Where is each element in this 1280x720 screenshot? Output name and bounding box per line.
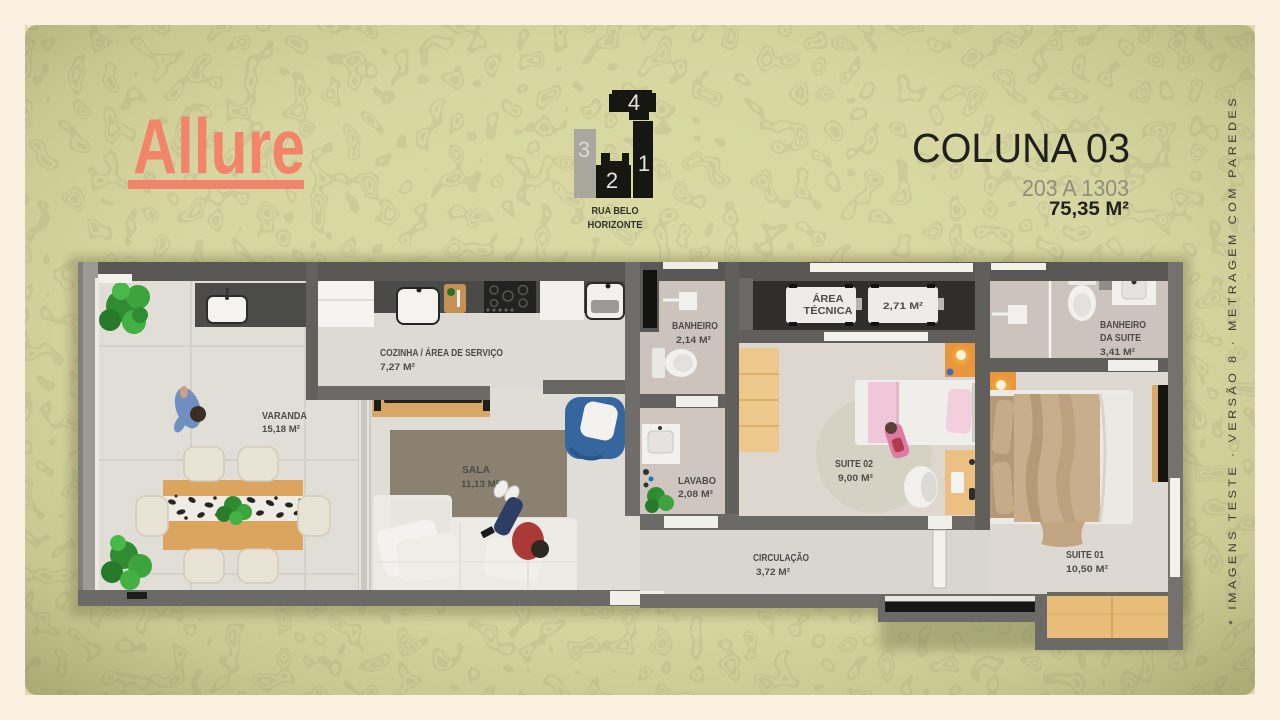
svg-text:DA SUITE: DA SUITE [1100,333,1141,344]
svg-text:7,27 M²: 7,27 M² [380,362,415,372]
svg-text:BANHEIRO: BANHEIRO [672,321,718,332]
svg-text:75,35 M²: 75,35 M² [1049,199,1129,220]
svg-text:COZINHA / ÁREA DE SERVIÇO: COZINHA / ÁREA DE SERVIÇO [380,347,503,359]
svg-text:2,14 M²: 2,14 M² [676,335,711,345]
svg-text:HORIZONTE: HORIZONTE [588,219,643,231]
svg-text:RUA BELO: RUA BELO [592,205,639,217]
svg-text:3,41 M²: 3,41 M² [1100,347,1135,357]
svg-text:9,00 M²: 9,00 M² [838,473,873,483]
svg-text:Allure: Allure [133,102,305,190]
svg-text:SUITE 02: SUITE 02 [835,459,873,470]
svg-text:10,50 M²: 10,50 M² [1066,564,1108,574]
svg-text:CIRCULAÇÃO: CIRCULAÇÃO [753,553,809,564]
svg-text:TÉCNICA: TÉCNICA [804,305,853,317]
svg-text:SUITE 01: SUITE 01 [1066,550,1104,561]
svg-text:3: 3 [578,137,590,162]
svg-text:* IMAGENS TESTE · VERSÃO 8 · M: * IMAGENS TESTE · VERSÃO 8 · METRAGEM CO… [1226,95,1239,625]
svg-text:VARANDA: VARANDA [262,411,307,422]
svg-text:LAVABO: LAVABO [678,476,716,487]
svg-text:15,18 M²: 15,18 M² [262,424,300,434]
svg-text:BANHEIRO: BANHEIRO [1100,320,1146,331]
svg-text:11,13 M²: 11,13 M² [461,479,499,489]
svg-text:COLUNA 03: COLUNA 03 [912,125,1130,171]
svg-text:SALA: SALA [462,465,490,476]
svg-text:2,08 M²: 2,08 M² [678,489,713,499]
svg-text:2: 2 [606,168,618,193]
svg-text:4: 4 [628,90,640,115]
svg-text:3,72 M²: 3,72 M² [756,567,790,577]
svg-text:2,71 M²: 2,71 M² [883,301,923,311]
svg-text:1: 1 [638,151,650,176]
svg-text:ÁREA: ÁREA [813,293,844,305]
svg-text:203 A 1303: 203 A 1303 [1022,175,1129,201]
